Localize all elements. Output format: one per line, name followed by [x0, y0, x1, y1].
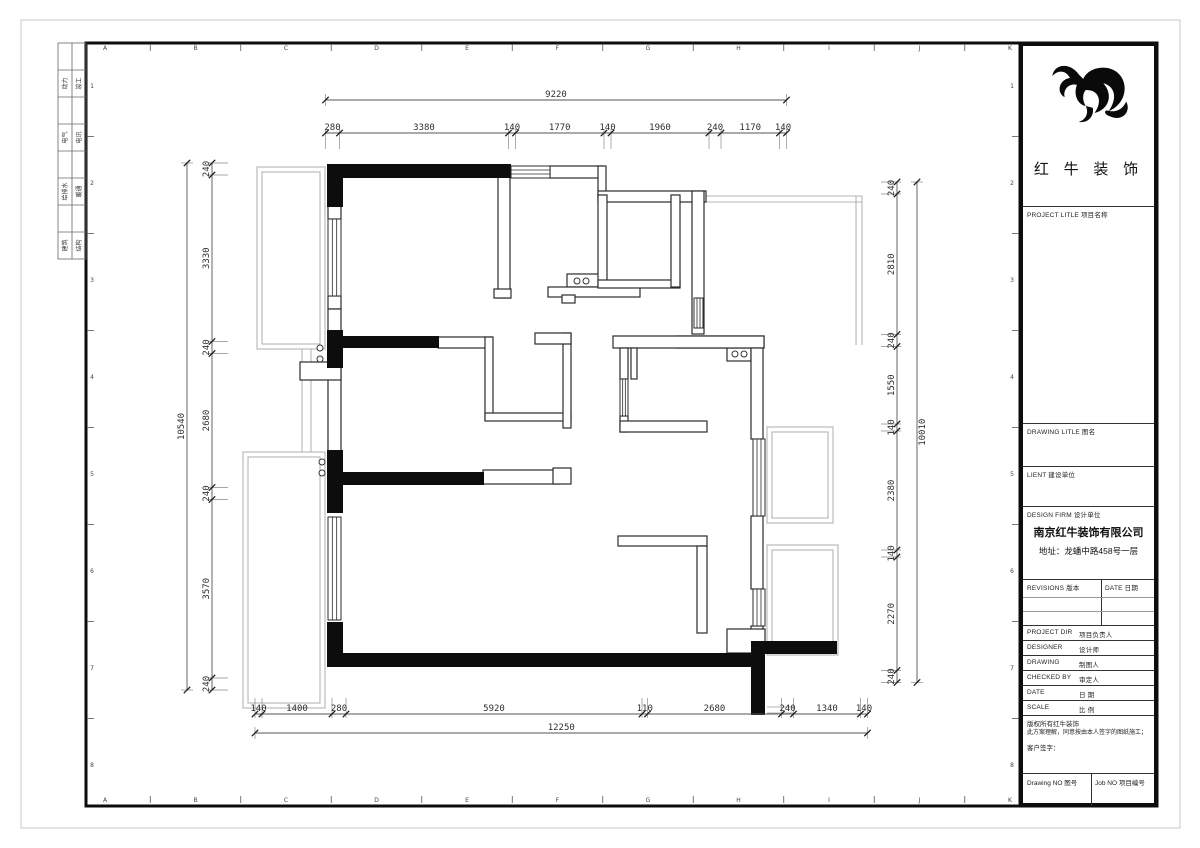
- dim-value: 140: [887, 545, 897, 561]
- grid-letter-bottom: C: [284, 797, 288, 804]
- dim-value: 280: [331, 704, 347, 714]
- dim-value: 240: [887, 668, 897, 684]
- grid-number-left: 6: [90, 568, 94, 575]
- discipline-label: 电气: [61, 131, 69, 143]
- staff-row-cn: 设计师: [1079, 644, 1099, 654]
- wall: [631, 348, 637, 379]
- dim-value: 140: [887, 419, 897, 435]
- dim-value: 240: [707, 123, 723, 133]
- date-header: DATE 日期: [1105, 582, 1138, 592]
- discipline-label: 建筑: [61, 239, 69, 251]
- wall: [613, 336, 764, 348]
- dim-value: 1400: [286, 704, 308, 714]
- copyright-line2: 此方案理解，同意按由本人签字的图纸施工；: [1027, 727, 1147, 736]
- socket-symbol: [317, 345, 323, 351]
- divider: [1023, 597, 1154, 598]
- balcony-outline: [257, 167, 325, 349]
- staff-row-en: DATE: [1027, 689, 1045, 696]
- discipline-label: 结构: [75, 239, 83, 251]
- company-name: 南京红牛装饰有限公司: [1023, 524, 1154, 540]
- wall: [598, 195, 607, 287]
- wall: [598, 191, 706, 202]
- wall-solid: [751, 641, 837, 654]
- staff-row-cn: 制图人: [1079, 659, 1099, 669]
- wall-solid: [337, 472, 484, 485]
- grid-letter-bottom: G: [646, 797, 651, 804]
- wall-solid: [340, 336, 439, 348]
- wall: [562, 295, 575, 303]
- grid-number-left: 5: [90, 471, 94, 478]
- wall: [697, 546, 707, 633]
- outer-border: [21, 20, 1180, 828]
- dim-value: 2680: [704, 704, 726, 714]
- dim-value: 2810: [887, 253, 897, 275]
- grid-number-left: 7: [90, 665, 94, 672]
- drawing-title-label: DRAWING LITLE 图名: [1027, 426, 1095, 436]
- dim-value: 2270: [887, 603, 897, 625]
- window: [753, 439, 765, 516]
- dim-value: 240: [202, 676, 212, 692]
- grid-number-right: 1: [1010, 83, 1014, 90]
- divider: [1023, 655, 1154, 656]
- dim-value: 5920: [483, 704, 505, 714]
- staff-row-cn: 比 例: [1079, 704, 1094, 714]
- brand-name: 红 牛 装 饰: [1023, 158, 1154, 179]
- grid-letter-top: C: [284, 45, 288, 52]
- balcony-outline: [248, 457, 320, 703]
- window: [511, 166, 550, 178]
- grid-letter-top: I: [828, 45, 830, 52]
- divider: [1023, 611, 1154, 612]
- dim-value: 140: [775, 123, 791, 133]
- wall: [483, 470, 560, 484]
- divider: [1023, 640, 1154, 641]
- wall: [751, 516, 763, 589]
- divider: [1023, 206, 1154, 207]
- dim-overall: 12250: [548, 723, 575, 733]
- dim-value: 240: [202, 161, 212, 177]
- discipline-label: 竣工: [75, 77, 83, 89]
- wall: [553, 468, 571, 484]
- dim-value: 1340: [816, 704, 838, 714]
- wall-solid: [327, 653, 764, 667]
- grid-letter-top: H: [736, 45, 741, 52]
- wall: [498, 177, 510, 298]
- discipline-label: 电讯: [75, 131, 83, 143]
- bottom-divider: [1091, 773, 1092, 806]
- staff-row-cn: 审定人: [1079, 674, 1099, 684]
- window: [328, 517, 341, 620]
- grid-letter-top: F: [556, 45, 560, 52]
- grid-number-right: 4: [1010, 374, 1014, 381]
- grid-letter-bottom: B: [193, 797, 197, 804]
- dim-value: 140: [250, 704, 266, 714]
- wall: [328, 206, 341, 219]
- grid-letter-bottom: E: [465, 797, 469, 804]
- dim-value: 240: [887, 332, 897, 348]
- rednbull-logo-icon: [1047, 60, 1135, 152]
- socket-symbol: [574, 278, 580, 284]
- staff-row-en: PROJECT DIR: [1027, 629, 1072, 636]
- staff-row-en: DRAWING: [1027, 659, 1060, 666]
- grid-letter-bottom: J: [918, 797, 921, 804]
- client-sign-label: 客户签字：: [1027, 742, 1060, 752]
- dim-value: 140: [599, 123, 615, 133]
- grid-number-left: 3: [90, 277, 94, 284]
- divider: [1023, 670, 1154, 671]
- dim-value: 3380: [413, 123, 435, 133]
- divider: [1023, 579, 1154, 580]
- divider: [1023, 466, 1154, 467]
- wall: [494, 289, 511, 298]
- divider: [1023, 685, 1154, 686]
- balcony-outline: [262, 172, 320, 344]
- grid-number-left: 1: [90, 83, 94, 90]
- dim-value: 240: [202, 485, 212, 501]
- grid-number-left: 2: [90, 180, 94, 187]
- dim-value: 1960: [649, 123, 671, 133]
- dim-value: 2680: [202, 410, 212, 432]
- window: [753, 589, 765, 626]
- grid-letter-bottom: F: [556, 797, 560, 804]
- grid-letter-top: B: [193, 45, 197, 52]
- revisions-header: REVISIONS 版本: [1027, 582, 1080, 592]
- balcony-outline: [767, 545, 838, 655]
- discipline-label: 暖通: [75, 185, 83, 197]
- grid-number-right: 7: [1010, 665, 1014, 672]
- divider: [1023, 773, 1154, 774]
- grid-letter-bottom: A: [103, 797, 108, 804]
- wall: [328, 309, 341, 332]
- grid-letter-bottom: K: [1008, 797, 1013, 804]
- dim-value: 1770: [549, 123, 571, 133]
- dim-value: 3330: [202, 247, 212, 269]
- divider: [1023, 423, 1154, 424]
- grid-number-right: 8: [1010, 762, 1014, 769]
- grid-letter-top: J: [918, 45, 921, 52]
- dim-value: 140: [856, 704, 872, 714]
- socket-symbol: [732, 351, 738, 357]
- dim-overall: 10540: [177, 413, 187, 440]
- wall-solid: [327, 164, 511, 178]
- grid-number-right: 6: [1010, 568, 1014, 575]
- grid-number-left: 4: [90, 374, 94, 381]
- drawing-no-label: Drawing NO 图号: [1027, 777, 1077, 787]
- design-firm-label: DESIGN FIRM 设计单位: [1027, 509, 1101, 519]
- dim-value: 3570: [202, 578, 212, 600]
- dim-value: 240: [887, 180, 897, 196]
- balcony-outline: [772, 432, 828, 518]
- wall: [328, 296, 341, 309]
- wall: [620, 348, 628, 379]
- wall: [550, 166, 602, 178]
- wall: [618, 536, 707, 546]
- dim-overall: 10010: [918, 419, 928, 446]
- grid-letter-top: K: [1008, 45, 1013, 52]
- project-title-label: PROJECT LITLE 项目名称: [1027, 209, 1108, 219]
- dim-value: 140: [504, 123, 520, 133]
- dim-value: 1170: [739, 123, 761, 133]
- drawing-sheet: AABBCCDDEEFFGGHHIIJJKK1122334455667788动力…: [0, 0, 1200, 848]
- socket-symbol: [317, 356, 323, 362]
- divider: [1023, 700, 1154, 701]
- window: [620, 379, 628, 416]
- dim-value: 280: [324, 123, 340, 133]
- grid-number-right: 2: [1010, 180, 1014, 187]
- wall: [598, 280, 680, 288]
- socket-symbol: [319, 470, 325, 476]
- staff-row-cn: 项目负责人: [1079, 629, 1113, 639]
- grid-letter-top: G: [646, 45, 651, 52]
- discipline-label: 给排水: [61, 182, 69, 200]
- grid-letter-bottom: H: [736, 797, 741, 804]
- window: [328, 219, 341, 296]
- grid-letter-bottom: D: [374, 797, 379, 804]
- staff-row-en: SCALE: [1027, 704, 1049, 711]
- socket-symbol: [319, 459, 325, 465]
- balcony-outline: [772, 550, 833, 650]
- divider: [1023, 506, 1154, 507]
- wall: [438, 337, 492, 348]
- balcony-outline: [767, 427, 833, 523]
- wall: [535, 333, 571, 344]
- dim-value: 240: [202, 339, 212, 355]
- grid-number-left: 8: [90, 762, 94, 769]
- wall: [563, 333, 571, 428]
- dim-overall: 9220: [545, 90, 567, 100]
- wall: [620, 421, 707, 432]
- wall-solid: [751, 654, 765, 715]
- dim-value: 240: [779, 704, 795, 714]
- revisions-divider: [1101, 579, 1102, 625]
- wall: [671, 195, 680, 287]
- grid-letter-bottom: I: [828, 797, 830, 804]
- discipline-label: 动力: [61, 77, 69, 89]
- divider: [1023, 625, 1154, 626]
- dim-value: 2380: [887, 480, 897, 502]
- staff-row-cn: 日 期: [1079, 689, 1094, 699]
- grid-number-right: 5: [1010, 471, 1014, 478]
- grid-number-right: 3: [1010, 277, 1014, 284]
- grid-letter-top: D: [374, 45, 379, 52]
- divider: [1023, 715, 1154, 716]
- wall-solid: [327, 164, 343, 207]
- socket-symbol: [741, 351, 747, 357]
- staff-row-en: DESIGNER: [1027, 644, 1063, 651]
- title-block: 红 牛 装 饰 PROJECT LITLE 项目名称 DRAWING LITLE…: [1020, 43, 1157, 806]
- job-no-label: Job NO 项目编号: [1095, 777, 1145, 787]
- grid-letter-top: A: [103, 45, 108, 52]
- wall: [751, 348, 763, 439]
- dim-value: 110: [637, 704, 653, 714]
- socket-symbol: [583, 278, 589, 284]
- client-label: LIENT 建设单位: [1027, 469, 1075, 479]
- wall: [485, 413, 571, 421]
- dim-value: 1550: [887, 374, 897, 396]
- grid-letter-top: E: [465, 45, 469, 52]
- balcony-outline: [243, 452, 325, 708]
- window: [694, 298, 703, 328]
- wall: [485, 337, 493, 420]
- staff-row-en: CHECKED BY: [1027, 674, 1071, 681]
- wall-solid: [327, 330, 343, 368]
- company-address: 地址：龙蟠中路458号一层: [1023, 545, 1154, 557]
